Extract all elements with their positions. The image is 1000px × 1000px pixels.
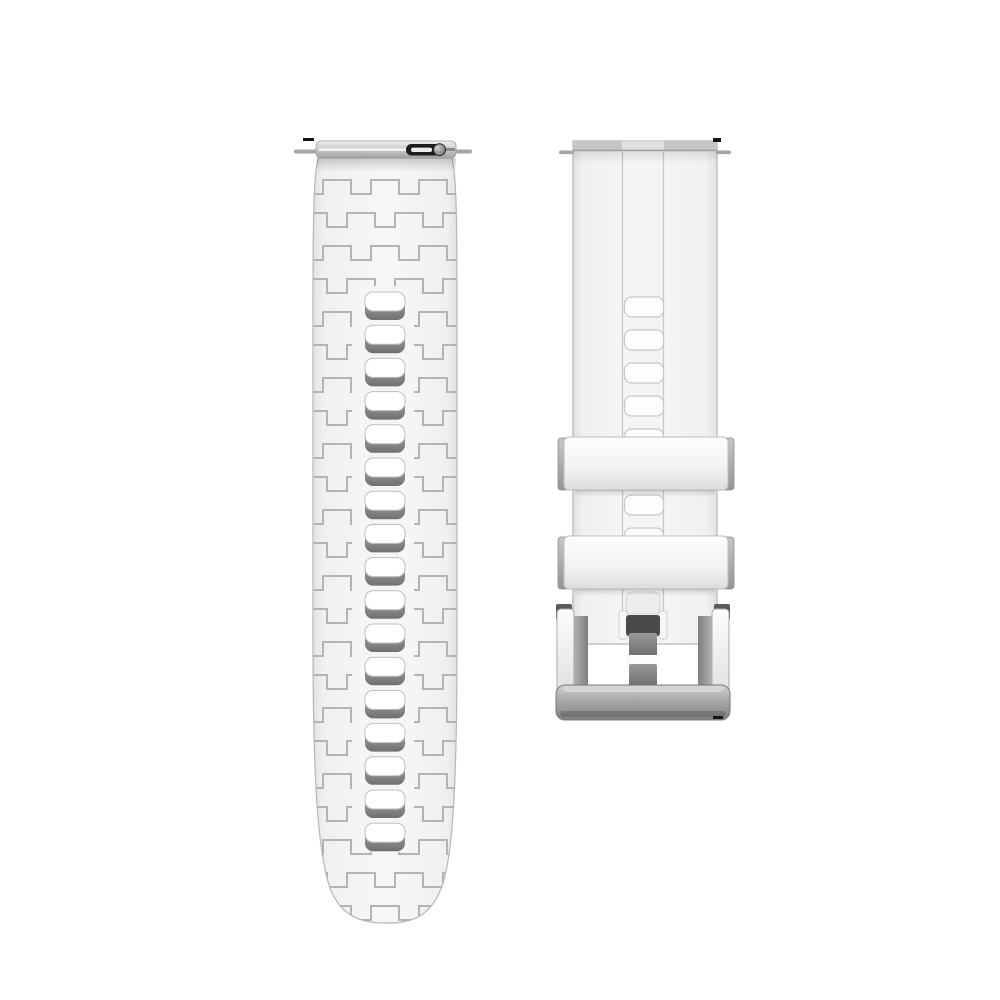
right-strap bbox=[556, 141, 734, 720]
strap-hole bbox=[365, 491, 405, 510]
strap-hole bbox=[365, 524, 405, 543]
artifact-dash bbox=[713, 716, 723, 719]
artifact-dash bbox=[303, 138, 314, 141]
underbar-shadow bbox=[317, 158, 456, 172]
frame-post-left bbox=[557, 609, 574, 695]
strap-hole bbox=[365, 823, 405, 842]
underbar-shadow bbox=[573, 151, 717, 163]
bottom-bar-shadow bbox=[560, 711, 726, 717]
tongue-anchor-slot bbox=[626, 615, 660, 636]
strap-hole bbox=[625, 363, 664, 383]
buckle-bottom-bar bbox=[556, 685, 730, 720]
strap-hole bbox=[365, 358, 405, 377]
product-photo-canvas bbox=[0, 0, 1000, 1000]
lug-bar-edge bbox=[573, 150, 717, 152]
strap-hole bbox=[365, 558, 405, 577]
lever-slot bbox=[411, 148, 432, 152]
spring-bar-pin-left bbox=[559, 151, 574, 155]
strap-hole bbox=[365, 325, 405, 344]
strap-hole bbox=[365, 724, 405, 743]
keeper-shadow bbox=[575, 490, 715, 497]
lug-bar-channel bbox=[622, 141, 664, 151]
strap-hole bbox=[365, 657, 405, 676]
strap-hole bbox=[365, 425, 405, 444]
watch-band-photo bbox=[0, 0, 1000, 1000]
slot-rib-right bbox=[659, 611, 667, 639]
slot-rib-left bbox=[619, 611, 627, 639]
tongue-highlight-band bbox=[626, 655, 660, 664]
spring-bar-pin-left bbox=[294, 150, 317, 154]
left-strap bbox=[294, 141, 472, 923]
artifact-dash bbox=[713, 138, 721, 142]
bottom-bar-highlight bbox=[563, 686, 723, 692]
strap-hole bbox=[365, 591, 405, 610]
frame-shade-left bbox=[574, 616, 588, 688]
strap-hole bbox=[365, 690, 405, 709]
strap-hole bbox=[625, 297, 664, 317]
strap-hole bbox=[625, 495, 664, 515]
strap-hole bbox=[365, 458, 405, 477]
buckle bbox=[556, 604, 730, 695]
spring-bar-pin-right bbox=[716, 151, 731, 155]
keeper-loop bbox=[564, 437, 728, 490]
strap-hole bbox=[365, 624, 405, 643]
frame-post-right bbox=[712, 609, 729, 695]
buckle-tongue-upper bbox=[629, 633, 657, 656]
keeper-shadow bbox=[575, 589, 715, 596]
strap-hole bbox=[365, 392, 405, 411]
spring-bar bbox=[294, 141, 472, 158]
strap-hole bbox=[365, 292, 405, 311]
strap-hole bbox=[625, 396, 664, 416]
buckle-tongue-lower bbox=[629, 664, 657, 687]
strap-hole bbox=[365, 790, 405, 809]
strap-hole bbox=[365, 757, 405, 776]
lever-knob bbox=[434, 144, 446, 156]
strap-hole bbox=[625, 330, 664, 350]
keeper-loop bbox=[564, 536, 728, 589]
left-strap-holes bbox=[365, 292, 405, 851]
frame-shade-right bbox=[698, 616, 712, 688]
spring-bar-pin-right bbox=[455, 150, 472, 154]
